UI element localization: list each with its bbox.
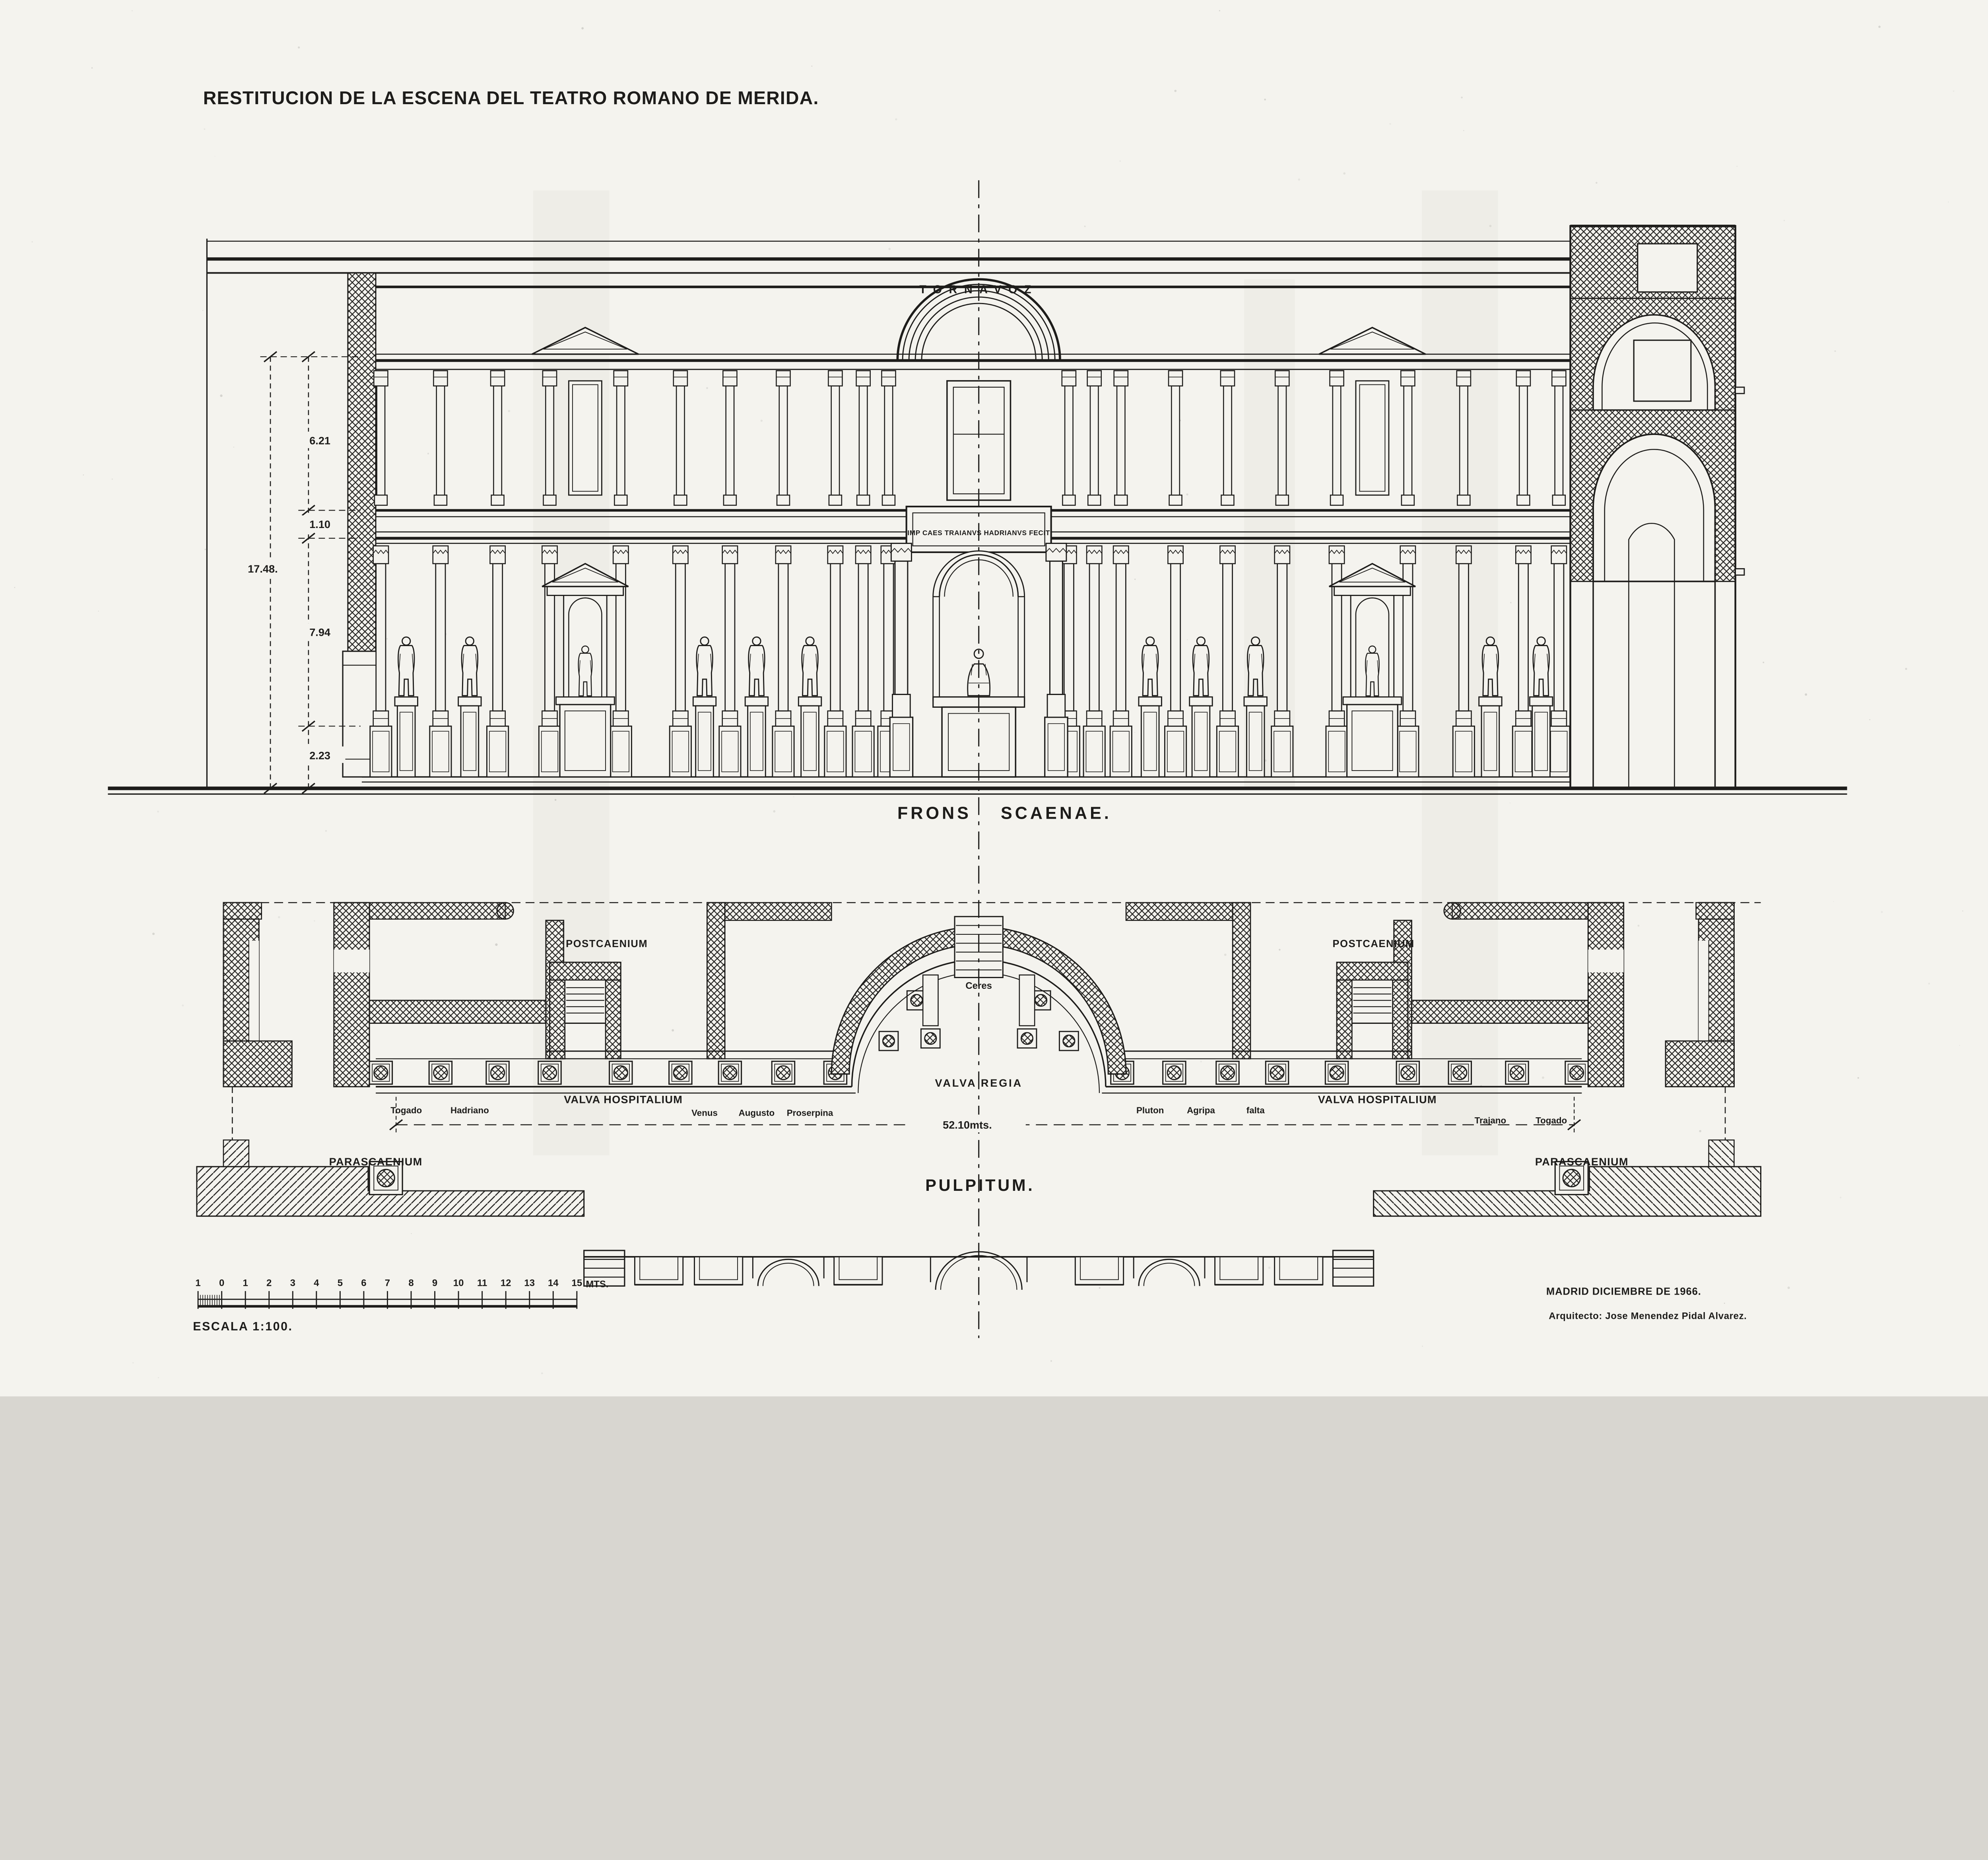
valva-regia-jamb-wall [923,975,938,1026]
left-pier-wall [348,273,376,651]
scalebar-tick-label: 15 [572,1278,582,1288]
column-capital-upper [1401,371,1415,386]
column-shaft-upper [377,386,385,495]
paper-speck [314,920,315,921]
column-base-upper [829,495,842,505]
column-capital-lower [1275,546,1290,564]
paper-speck [495,944,497,946]
versura-window-top [1638,244,1697,292]
statue-slab [1139,697,1161,706]
tornavoz-label: TORNAVOZ [919,283,1038,296]
paper-speck [1343,172,1345,175]
column-pedestal [719,726,741,777]
column-capital-upper [674,371,687,386]
column-capital-lower [490,546,505,564]
column-shaft-upper [726,386,734,495]
statue-slab [395,697,417,706]
paper-speck [581,27,584,29]
scalebar-tick-label: 10 [453,1278,464,1288]
giant-column-base [1047,694,1065,717]
paper-speck [1763,662,1764,663]
column-shaft-upper [1090,386,1098,495]
aedicule-slab [556,697,614,705]
paper-speck [541,1373,543,1375]
paper-speck [1422,1345,1423,1347]
column-capital-lower [1456,546,1471,564]
column-capital-upper [1087,371,1101,386]
paper-speck [508,410,510,412]
column-capital-upper [543,371,557,386]
valva-hospitalium-left-label: VALVA HOSPITALIUM [564,1093,683,1106]
column-capital-lower [1220,546,1235,564]
paper-speck [220,394,222,397]
paper-speck [773,810,775,813]
paper-speck [1084,225,1086,227]
column-capital-upper [723,371,737,386]
column-capital-upper [1062,371,1076,386]
paper-speck [91,67,93,69]
scalebar-tick-label: 11 [477,1278,487,1288]
paper-speck [761,419,763,421]
column-pedestal [610,726,631,777]
architectural-drawing-sheet: TogadoHadrianoVenusAugustoProserpinaPlut… [0,0,1988,1396]
paper-speck [622,960,623,961]
aedicule-pedestal [1347,705,1398,777]
west-wall-notch [249,941,259,1055]
column-shaft-upper [1117,386,1125,495]
column-base-upper [1169,495,1182,505]
paper-speck [1510,802,1510,803]
column-capital-lower [542,546,557,564]
pulpitum-rect-niche [635,1257,683,1285]
column-capital-lower [613,546,628,564]
paper-speck [1174,90,1176,92]
scalebar-tick-label: 3 [290,1278,295,1288]
paper-speck [152,933,155,935]
paper-speck [1833,901,1834,902]
paper-speck [1724,1303,1725,1304]
paper-speck [132,1362,134,1363]
column-base-upper [1088,495,1101,505]
wall-round-end [497,903,514,919]
paper-speck [1050,1360,1052,1362]
column-shaft-upper [676,386,684,495]
paper-speck [427,453,429,454]
scalebar-tick-label: 5 [338,1278,343,1288]
elevation-caption-frons: FRONS [897,804,971,823]
column-capital-lower [673,546,688,564]
column-capital-lower [373,546,388,564]
statue-slab [1244,697,1267,706]
column-shaft-lower [1171,564,1180,711]
ceres-altar-label: Ceres [965,980,992,991]
pulpitum-rect-niche [1215,1257,1263,1285]
column-base-upper [1062,495,1075,505]
column-shaft-lower [1089,564,1099,711]
elevation-caption-scaenae: SCAENAE. [1001,804,1112,823]
plan-column-shaft [674,1066,687,1079]
column-shaft-lower [858,564,868,711]
paper-speck [1699,1130,1701,1132]
plan-width-dimension: 52.10mts. [943,1118,992,1131]
paper-speck [158,1377,159,1378]
column-capital-upper [1221,371,1235,386]
column-shaft-upper [1278,386,1286,495]
plan-column-shaft [777,1066,790,1079]
column-pedestal [1165,726,1186,777]
column-capital-upper [1457,371,1471,386]
column-base-upper [1517,495,1530,505]
dim-podium: 2.23 [309,749,330,761]
column-pedestal [670,726,691,777]
paper-speck [1962,911,1963,912]
dim-entablature-band: 1.10 [309,518,330,530]
paper-speck [1186,493,1188,495]
paper-speck [1542,1076,1544,1079]
column-base-upper [614,495,627,505]
column-shaft-lower [376,564,386,711]
scalebar-tick-label: 2 [266,1278,272,1288]
column-capital-lower [856,546,871,564]
column-base-upper [1330,495,1343,505]
column-shaft-upper [1333,386,1341,495]
column-pedestal [1326,726,1347,777]
column-base-upper [1553,495,1565,505]
column-base-upper [1114,495,1127,505]
column-pedestal [370,726,392,777]
valva-hospitalium-right-label: VALVA HOSPITALIUM [1318,1093,1437,1106]
column-pedestal [773,726,794,777]
column-base-upper [674,495,687,505]
paper-speck [888,248,891,250]
versura-arch-low [1593,434,1715,581]
plan-column-shaft [614,1066,627,1079]
column-capital-upper [828,371,842,386]
valva-niche-floor [565,980,606,1059]
paper-speck [1298,179,1300,181]
column-shaft-lower [493,564,502,711]
aedicule-slab [1343,697,1402,705]
dim-total-height: 17.48. [248,563,278,575]
column-shaft-lower [1223,564,1232,711]
column-capital-lower [828,546,843,564]
paper-speck [1736,166,1738,167]
versura-cornice-tick [1736,569,1744,575]
footer-place-date: MADRID DICIEMBRE DE 1966. [1546,1286,1701,1297]
column-capital-upper [1552,371,1566,386]
paper-speck [811,66,812,67]
footer-architect: Arquitecto: Jose Menendez Pidal Alvarez. [1549,1311,1747,1321]
plan-column-shaft [491,1066,504,1079]
paper-speck [1953,90,1955,92]
statue-slab [798,697,821,706]
paper-speck [132,10,132,11]
column-shaft-lower [1116,564,1126,711]
valva-regia-label: VALVA REGIA [935,1077,1022,1089]
giant-column-shaft [1050,561,1062,694]
drawing-title: RESTITUCION DE LA ESCENA DEL TEATRO ROMA… [203,87,819,108]
paper-speck [1869,719,1870,720]
paper-speck [793,796,794,797]
column-shaft-lower [1518,564,1528,711]
paper-speck [1928,983,1930,985]
column-capital-lower [1113,546,1128,564]
paper-speck [1119,160,1121,162]
column-base-upper [724,495,736,505]
column-base-upper [434,495,447,505]
paper-speck [411,1233,412,1234]
pulpitum-rect-niche [1275,1257,1323,1285]
plan-column-shaft [374,1066,388,1079]
statue-name-label: Agripa [1187,1105,1215,1115]
column-base-upper [491,495,504,505]
scalebar-tick-label: 14 [548,1278,559,1288]
paper-speck [1463,130,1464,131]
scalebar-tick-label: 7 [385,1278,390,1288]
paper-speck [1099,1287,1101,1289]
statue-name-label: Proserpina [787,1108,833,1118]
scalebar-tick-label: 0 [219,1278,224,1288]
paper-speck [1805,693,1807,696]
statue-slab [1190,697,1212,706]
plan-column-shaft [723,1066,737,1079]
column-pedestal [1217,726,1238,777]
column-pedestal [1397,726,1419,777]
plan-column-shaft [543,1066,556,1079]
valva-back-wall [550,962,621,980]
statue-name-label: Hadriano [450,1105,489,1115]
column-base-upper [1402,495,1414,505]
column-base-upper [1276,495,1289,505]
column-base-upper [1221,495,1234,505]
column-base-upper [375,495,387,505]
paper-speck [1134,579,1136,580]
column-capital-upper [433,371,447,386]
statue-name-label: Togado [1536,1116,1567,1126]
statue-name-label: Trajano [1475,1116,1506,1126]
column-pedestal [825,726,846,777]
paper-speck [1638,925,1640,927]
paper-speck [386,638,388,639]
valva-side-wall [606,980,621,1059]
column-capital-upper [491,371,505,386]
niche-jamb-column [933,597,940,701]
column-capital-lower [433,546,448,564]
paper-speck [1878,26,1881,28]
paper-speck [31,241,33,243]
dim-upper-order: 6.21 [309,434,330,447]
postcaenium-left-label: POSTCAENIUM [566,938,648,949]
paper-speck [278,916,280,918]
column-base-upper [777,495,790,505]
column-capital-upper [1169,371,1182,386]
paper-speck [1948,201,1949,202]
paper-speck [157,811,159,813]
paper-speck [1187,639,1188,640]
paper-speck [672,1029,674,1031]
column-pedestal [1548,726,1570,777]
column-pedestal [1110,726,1132,777]
column-shaft-lower [779,564,788,711]
versura-window-mid [1634,340,1691,401]
upper-niche [569,381,602,495]
paper-speck [112,479,113,480]
pulpitum-rect-niche [834,1257,882,1285]
statue-name-label: Pluton [1136,1105,1164,1115]
column-capital-upper [1275,371,1289,386]
paper-speck [325,830,327,832]
paper-speck [1905,668,1907,670]
paper-speck [83,474,84,476]
column-shaft-lower [831,564,840,711]
column-capital-upper [776,371,790,386]
column-shaft-upper [1404,386,1412,495]
scalebar-tick-label: 12 [501,1278,511,1288]
paper-speck [706,387,708,389]
statue-slab [1530,697,1552,706]
postcaenium-right-label: POSTCAENIUM [1333,938,1415,949]
column-base-upper [857,495,870,505]
column-pedestal [430,726,451,777]
column-pedestal [1083,726,1105,777]
column-capital-lower [776,546,791,564]
column-shaft-upper [859,386,867,495]
scalebar-tick-label: 1 [195,1278,200,1288]
column-pedestal [1512,726,1534,777]
column-capital-lower [1168,546,1183,564]
paper-speck [233,447,234,448]
column-shaft-upper [1519,386,1527,495]
paper-speck [1268,1266,1271,1269]
paper-speck [204,128,205,130]
column-shaft-upper [1171,386,1179,495]
column-shaft-lower [1277,564,1287,711]
scalebar-tick-label: 6 [361,1278,366,1288]
column-capital-lower [1400,546,1415,564]
statue-name-label: Togado [390,1105,422,1115]
scalebar-tick-label: 8 [408,1278,414,1288]
column-capital-lower [1087,546,1102,564]
paper-speck [1389,123,1391,125]
column-shaft-lower [725,564,735,711]
giant-column-capital [891,544,911,561]
paper-speck [1858,1077,1859,1079]
parascaenium-right-label: PARASCAENIUM [1535,1155,1629,1168]
column-base-upper [1457,495,1470,505]
dim-lower-order: 7.94 [309,626,330,639]
paper-speck [215,156,215,157]
west-cross-wall [369,1000,546,1023]
giant-column-shaft [895,561,908,694]
column-shaft-upper [1460,386,1468,495]
scalebar-tick-label: 4 [314,1278,319,1288]
scalebar-tick-label: 13 [524,1278,535,1288]
column-capital-upper [374,371,388,386]
paper-speck [205,549,206,550]
scaena-top-wall [725,903,831,920]
column-shaft-upper [617,386,625,495]
column-shaft-lower [1554,564,1564,711]
column-shaft-lower [884,564,893,711]
parascaenium-left-label: PARASCAENIUM [329,1155,423,1168]
paper-speck [202,310,203,311]
column-pedestal [539,726,560,777]
column-shaft-upper [1065,386,1073,495]
statue-slab [693,697,716,706]
column-pedestal [1272,726,1293,777]
west-top-wall-a [223,903,262,919]
column-capital-upper [856,371,870,386]
statue-slab [458,697,481,706]
apse-column-shaft [883,1035,894,1046]
column-shaft-lower [676,564,685,711]
column-shaft-upper [437,386,445,495]
paper-speck [1959,1045,1960,1046]
column-capital-upper [1114,371,1128,386]
column-capital-upper [1330,371,1344,386]
column-capital-upper [614,371,628,386]
column-shaft-upper [779,386,787,495]
apse-column-shaft [911,994,922,1006]
paper-speck [182,1004,184,1006]
paper-speck [1219,10,1220,11]
paper-speck [1264,99,1266,101]
scaena-wall-b [707,903,725,1059]
west-corner-wall [223,1041,292,1087]
plan-caption-pulpitum: PULPITUM. [925,1176,1035,1194]
inscription-plaque-text: IMP CAES TRAIANVS HADRIANVS FECIT [907,529,1050,537]
paper-speck [1134,732,1135,733]
column-shaft-upper [1223,386,1231,495]
paper-speck [1279,949,1281,951]
statue-name-label: Venus [691,1108,718,1118]
column-capital-lower [1329,546,1344,564]
west-inner-wall [334,903,369,1087]
column-base-upper [544,495,556,505]
column-shaft-lower [436,564,445,711]
column-capital-lower [1516,546,1531,564]
statue-slab [745,697,768,706]
paper-speck [1881,911,1883,913]
column-pedestal [487,726,508,777]
giant-column-base [893,694,911,717]
paper-speck [298,47,300,49]
column-shaft-upper [831,386,839,495]
scale-caption: ESCALA 1:100. [193,1320,293,1333]
west-door-gap [334,949,369,972]
parascaenium-column [377,1169,394,1186]
paper-speck [1784,220,1785,221]
paper-speck [1461,97,1463,99]
column-shaft-upper [1555,386,1563,495]
column-base-upper [882,495,895,505]
statue-name-label: Augusto [739,1108,775,1118]
column-shaft-lower [1459,564,1468,711]
column-pedestal [852,726,874,777]
paper-speck [895,118,897,120]
column-shaft-upper [546,386,553,495]
column-capital-lower [1551,546,1567,564]
paper-speck [1835,350,1836,352]
valva-regia-jamb-wall [1019,975,1035,1026]
versura-cornice-tick [1736,387,1744,394]
paper-speck [1596,182,1598,184]
paper-speck [1788,1287,1790,1289]
giant-column-capital [1046,544,1066,561]
paper-speck [1840,1197,1841,1198]
plan-column-shaft [434,1066,447,1079]
column-capital-upper [881,371,895,386]
